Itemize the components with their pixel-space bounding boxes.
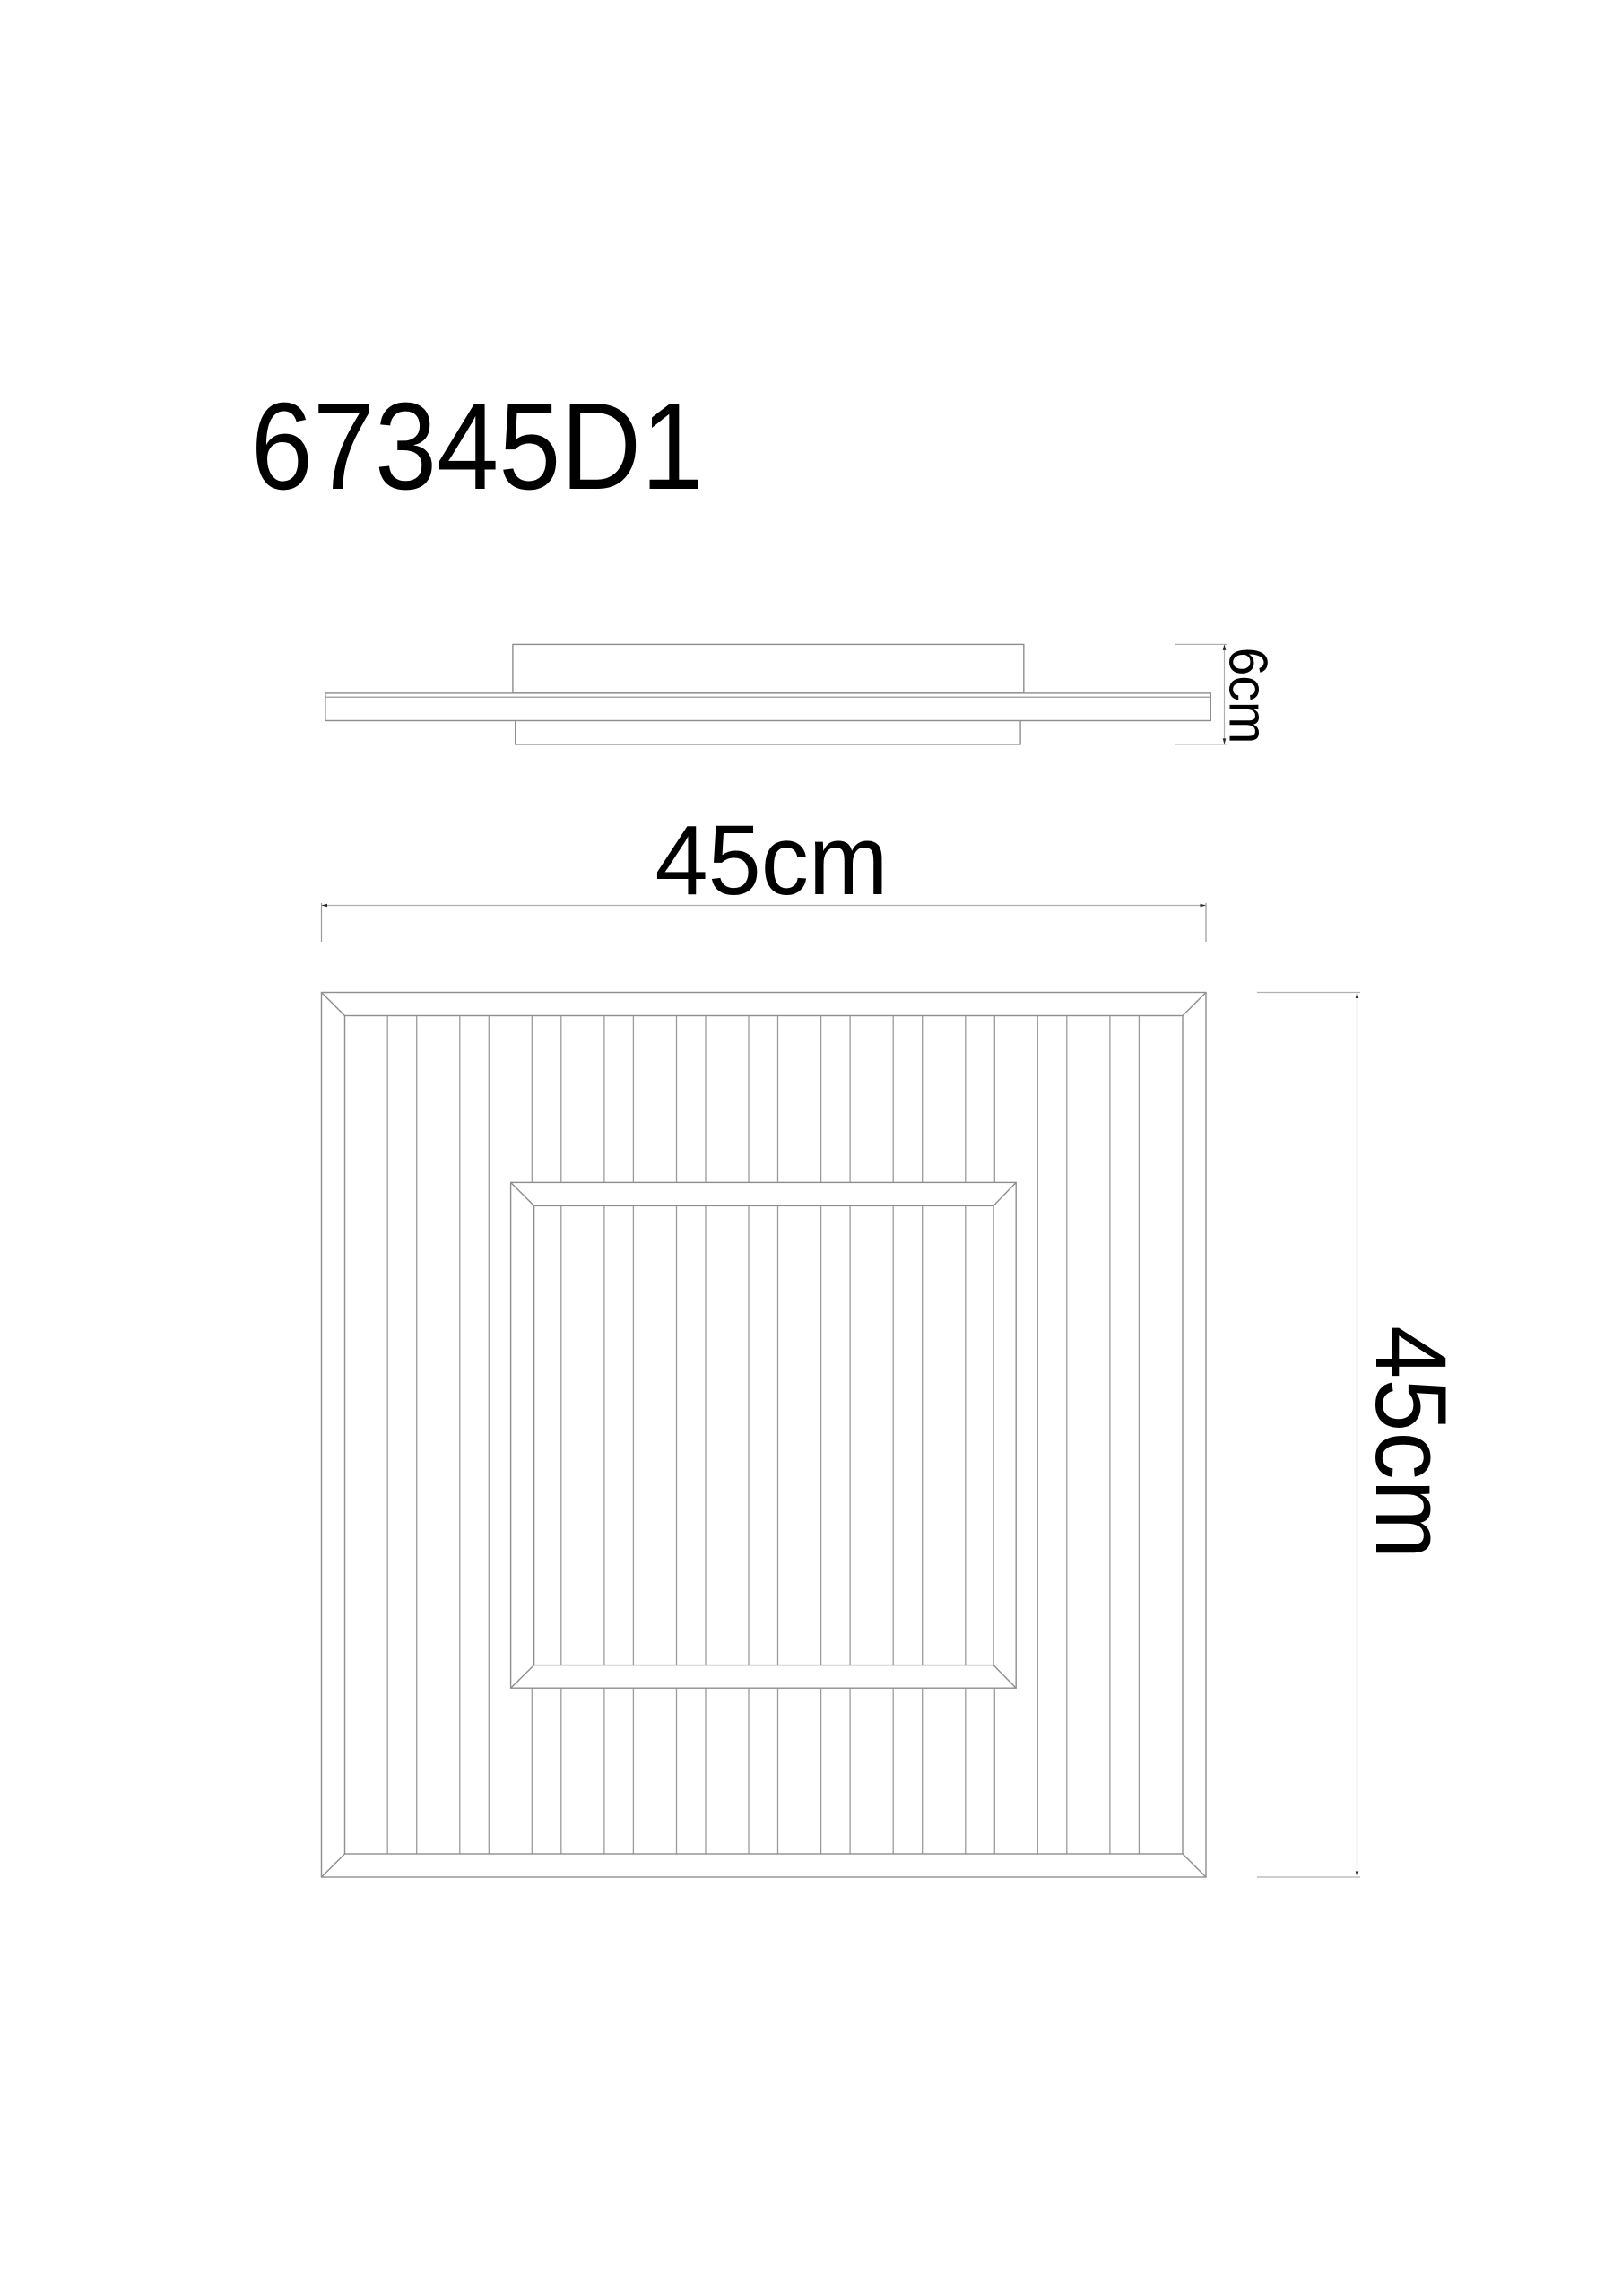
svg-text:45cm: 45cm — [655, 805, 888, 916]
svg-text:67345D1: 67345D1 — [251, 378, 703, 516]
svg-text:6cm: 6cm — [1219, 648, 1279, 744]
svg-text:45cm: 45cm — [1355, 1326, 1467, 1559]
